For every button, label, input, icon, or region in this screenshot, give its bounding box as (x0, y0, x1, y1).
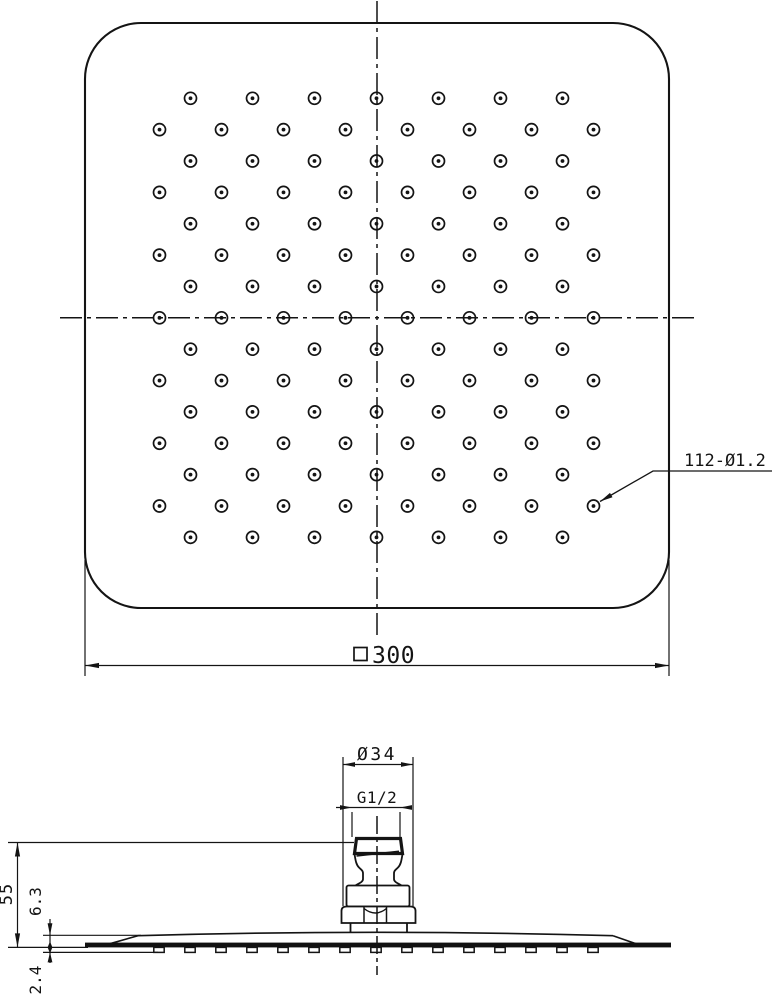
nozzle-hole-dot (313, 347, 317, 351)
nozzle-nub (557, 947, 567, 952)
nozzle-hole-dot (406, 316, 410, 320)
nozzle-hole-dot (158, 128, 162, 132)
nozzle-hole-dot (158, 253, 162, 257)
callout-arrowhead (600, 493, 613, 502)
nozzle-hole-dot (437, 473, 441, 477)
nozzle-hole-dot (468, 504, 472, 508)
nozzle-hole-dot (530, 504, 534, 508)
nozzle-hole-dot (220, 253, 224, 257)
nozzle-hole-dot (406, 379, 410, 383)
nozzle-hole-dot (437, 535, 441, 539)
arrowhead-left (343, 762, 355, 767)
nozzle-hole-dot (251, 410, 255, 414)
plate-dimensions: 6.3 2.4 (26, 887, 158, 994)
nozzle-hole-dot (561, 159, 565, 163)
nozzle-hole-dot (468, 190, 472, 194)
nozzle-hole-dot (313, 96, 317, 100)
nozzle-hole-dot (375, 535, 379, 539)
size-value: 300 (372, 643, 415, 669)
nozzle-hole-dot (592, 253, 596, 257)
nozzle-hole-dot (220, 504, 224, 508)
nozzle-hole-dot (251, 473, 255, 477)
nozzle-hole-dot (189, 96, 193, 100)
connector-stem-right (394, 854, 403, 886)
connector-stem-left (355, 854, 364, 886)
nozzle-hole-dot (189, 535, 193, 539)
nozzle-hole-dot (158, 190, 162, 194)
nozzle-hole-dot (313, 222, 317, 226)
nozzle-hole-dot (530, 441, 534, 445)
technical-drawing: 300 112-Ø1.2 Ø34 G1/2 (0, 0, 773, 1000)
nozzle-hole-dot (344, 190, 348, 194)
nozzle-hole-dot (344, 253, 348, 257)
nozzle-hole-dot (220, 379, 224, 383)
face-height-label: 6.3 (26, 887, 45, 916)
arrowhead-right (655, 663, 669, 668)
nozzle-hole-dot (499, 347, 503, 351)
nozzle-hole-dot (499, 222, 503, 226)
callout-leader (600, 471, 772, 502)
nozzle-hole-dot (251, 222, 255, 226)
nozzle-hole-dot (592, 128, 596, 132)
nozzle-hole-dot (282, 504, 286, 508)
nozzle-hole-dot (220, 190, 224, 194)
nozzle-nub (247, 947, 257, 952)
nozzle-nub (216, 947, 226, 952)
nozzle-nub (154, 947, 164, 952)
arrowhead-pair-diamond (48, 941, 53, 953)
nozzle-hole-dot (499, 285, 503, 289)
drawing-sheet: 300 112-Ø1.2 Ø34 G1/2 (0, 0, 773, 1000)
nozzle-hole-dot (561, 410, 565, 414)
arrowhead-left (85, 663, 99, 668)
plate-top-surface (138, 932, 613, 935)
nozzle-hole-dot (468, 379, 472, 383)
nozzle-hole-dot (344, 441, 348, 445)
nozzle-hole-dot (220, 128, 224, 132)
nozzle-hole-dot (561, 285, 565, 289)
nozzle-hole-dot (158, 441, 162, 445)
arrowhead-top (15, 843, 20, 857)
nozzle-nub (526, 947, 536, 952)
holes-callout: 112-Ø1.2 (600, 451, 772, 502)
nozzle-hole-dot (282, 253, 286, 257)
plate-bevel-right (613, 936, 636, 944)
nozzle-hole-dot (592, 504, 596, 508)
nozzle-hole-dot (530, 253, 534, 257)
nozzle-hole-dot (189, 410, 193, 414)
nozzle-hole-dot (437, 222, 441, 226)
nozzle-nub (402, 947, 412, 952)
nozzle-hole-dot (468, 128, 472, 132)
nozzle-hole-dot (282, 441, 286, 445)
nozzle-hole-dot (499, 96, 503, 100)
nozzle-hole-dot (437, 159, 441, 163)
nozzle-nubs-group (154, 947, 598, 952)
nozzle-nub (433, 947, 443, 952)
nozzle-hole-dot (561, 535, 565, 539)
nozzle-hole-dot (499, 473, 503, 477)
nozzle-hole-dot (499, 159, 503, 163)
top-view: 300 112-Ø1.2 (60, 1, 772, 676)
nozzle-hole-dot (189, 347, 193, 351)
nozzle-hole-dot (344, 504, 348, 508)
nozzle-hole-dot (251, 347, 255, 351)
nozzle-hole-dot (313, 285, 317, 289)
nozzle-hole-dot (530, 379, 534, 383)
nozzle-hole-dot (530, 190, 534, 194)
nozzle-hole-dot (313, 410, 317, 414)
nozzle-hole-dot (561, 473, 565, 477)
nozzle-hole-dot (530, 128, 534, 132)
nozzle-hole-dot (592, 379, 596, 383)
nozzle-hole-dot (313, 535, 317, 539)
nozzle-hole-dot (468, 253, 472, 257)
plate-bevel-left (110, 936, 138, 944)
nozzle-hole-dot (437, 96, 441, 100)
nozzle-nub (464, 947, 474, 952)
connector-diameter-label: Ø34 (357, 744, 397, 765)
nozzle-nub (309, 947, 319, 952)
nozzle-hole-dot (437, 285, 441, 289)
nozzle-hole-dot (592, 190, 596, 194)
nozzle-hole-dot (251, 159, 255, 163)
callout-label: 112-Ø1.2 (684, 451, 766, 471)
connector-body (347, 886, 410, 907)
nozzle-hole-dot (189, 285, 193, 289)
nozzle-hole-dot (344, 128, 348, 132)
nozzle-hole-dot (561, 96, 565, 100)
arrowhead-up (48, 952, 53, 962)
nozzle-hole-dot (251, 535, 255, 539)
square-symbol (354, 648, 367, 661)
nozzle-nub (278, 947, 288, 952)
nozzle-hole-dot (251, 96, 255, 100)
nozzle-hole-dot (344, 316, 348, 320)
nozzle-hole-dot (561, 347, 565, 351)
connector (342, 839, 416, 933)
connector-nut (342, 907, 416, 924)
nozzle-hole-dot (282, 379, 286, 383)
thread-spec-label: G1/2 (357, 788, 398, 807)
nozzle-hole-dot (406, 253, 410, 257)
nozzle-hole-dot (282, 190, 286, 194)
nozzle-hole-dot (220, 441, 224, 445)
thread-dimension: G1/2 (336, 788, 412, 837)
nozzle-nub (495, 947, 505, 952)
nozzle-hole-dot (375, 347, 379, 351)
nozzle-hole-dot (468, 441, 472, 445)
overall-height-label: 55 (0, 883, 17, 905)
nozzle-hole-dot (561, 222, 565, 226)
nozzle-hole-dot (592, 441, 596, 445)
nozzle-hole-dot (313, 159, 317, 163)
nozzle-nub (340, 947, 350, 952)
nozzle-hole-dot (282, 128, 286, 132)
nozzle-hole-dot (251, 285, 255, 289)
arrowhead-left (340, 805, 352, 810)
nozzle-hole-dot (158, 504, 162, 508)
nozzle-hole-dot (499, 410, 503, 414)
arrowhead-right (400, 805, 412, 810)
arrowhead-down (48, 923, 53, 935)
plate-section (85, 932, 671, 952)
nozzle-hole-dot (158, 379, 162, 383)
nozzle-nub (185, 947, 195, 952)
nozzle-hole-dot (344, 379, 348, 383)
nozzle-hole-dot (189, 473, 193, 477)
nozzle-hole-dot (406, 441, 410, 445)
nozzle-hole-dot (189, 222, 193, 226)
nozzle-hole-dot (437, 410, 441, 414)
nozzle-hole-dot (189, 159, 193, 163)
nozzle-hole-dot (313, 473, 317, 477)
nozzle-hole-dot (406, 504, 410, 508)
nozzle-nub (371, 947, 381, 952)
arrowhead-right (401, 762, 413, 767)
nozzle-hole-dot (375, 96, 379, 100)
nozzle-hole-dot (375, 285, 379, 289)
nozzle-height-label: 2.4 (26, 966, 45, 995)
side-view: Ø34 G1/2 (0, 744, 671, 994)
connector-diameter-dimension: Ø34 (343, 744, 413, 906)
nozzle-hole-dot (406, 128, 410, 132)
nozzle-hole-dot (406, 190, 410, 194)
arrowhead-bottom (15, 933, 20, 947)
nozzle-nub (588, 947, 598, 952)
nozzle-hole-dot (499, 535, 503, 539)
nozzle-hole-dot (437, 347, 441, 351)
overall-height-dimension: 55 (0, 843, 354, 948)
